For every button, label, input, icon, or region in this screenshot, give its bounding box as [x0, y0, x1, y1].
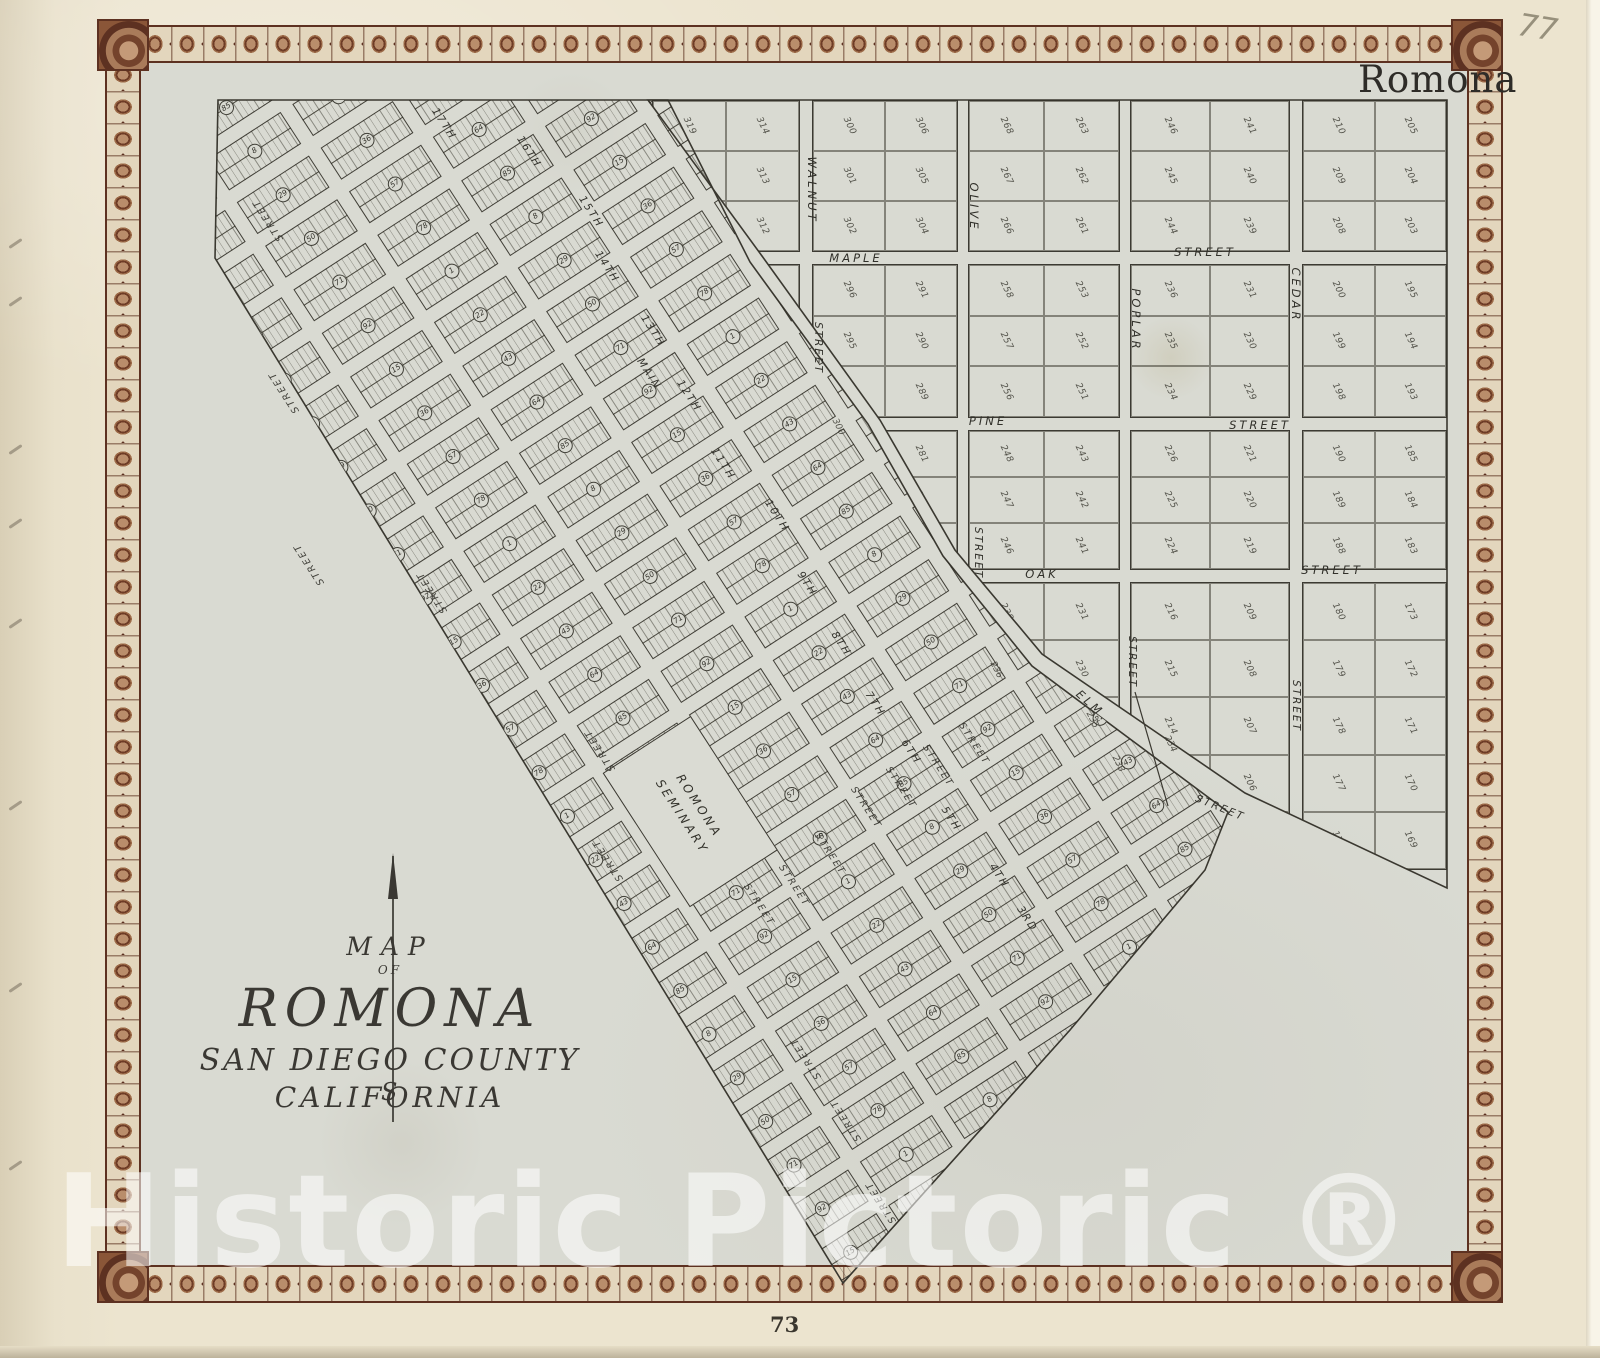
street-label-walnut: WALNUT: [805, 156, 819, 223]
lot-number: 296: [840, 280, 857, 301]
lot-number: 229: [1241, 381, 1258, 402]
lot-cell: 230: [1210, 316, 1289, 367]
street-label-street: STREET: [1290, 680, 1302, 732]
block-number: 36: [1034, 806, 1055, 827]
lot-number: 306: [912, 115, 929, 136]
lot-cell: 301: [813, 151, 885, 201]
lot-number: 180: [1330, 601, 1347, 622]
block-number: 78: [471, 490, 492, 511]
block-number: 85: [670, 980, 691, 1001]
block-number: 57: [839, 1057, 860, 1078]
lot-number: 246: [1162, 115, 1179, 136]
lot-number: 183: [1402, 535, 1419, 556]
lot-number: 290: [912, 330, 929, 351]
block-number: 8: [583, 479, 604, 500]
street-label-cedar: CEDAR: [1289, 267, 1303, 322]
lot-number: 234: [1162, 381, 1179, 402]
lot-cell: 239: [1210, 201, 1289, 251]
lot-number: 205: [1402, 115, 1419, 136]
lot-number: 258: [998, 280, 1015, 301]
block-number: 50: [921, 632, 942, 653]
lot-number: 209: [1330, 165, 1347, 186]
block-number: 64: [865, 730, 886, 751]
block-number: 29: [893, 588, 914, 609]
lot-number: 208: [1330, 215, 1347, 236]
lot-cell: 241: [1044, 523, 1119, 569]
block-number: 43: [556, 621, 577, 642]
lot-cell: 180: [1303, 583, 1375, 640]
lot-cell: 245: [1131, 151, 1210, 201]
lot-number: 177: [1330, 773, 1347, 794]
lot-cell: 248: [969, 431, 1044, 477]
lot-cell: 258: [969, 265, 1044, 316]
block-number: 29: [273, 184, 294, 205]
lot-number: 169: [1402, 830, 1419, 851]
block-number: 43: [498, 348, 519, 369]
lot-number: 194: [1402, 330, 1419, 351]
lot-cell: 210: [1303, 101, 1375, 151]
lot-number: 281: [912, 443, 929, 464]
street-label-pine: PINE: [969, 414, 1007, 428]
lot-number: 231: [1241, 280, 1258, 301]
lot-cell: 190: [1303, 431, 1375, 477]
lot-number: 241: [1241, 115, 1258, 136]
lot-cell: 205: [1375, 101, 1447, 151]
lot-cell: 170: [1375, 755, 1447, 812]
lot-number: 304: [912, 215, 929, 236]
block-number: 50: [755, 1111, 776, 1132]
lot-number: 193: [1402, 381, 1419, 402]
lot-number: 189: [1330, 489, 1347, 510]
street-label-oak: OAK: [1025, 567, 1058, 581]
lot-cell: 224: [1131, 523, 1210, 569]
lot-number: 239: [1241, 215, 1258, 236]
block-number: 57: [724, 512, 745, 533]
street-label-poplar: POPLAR: [1129, 288, 1143, 351]
lot-number: 244: [1162, 215, 1179, 236]
lot-number: 248: [998, 443, 1015, 464]
street-label-street: STREET: [1174, 245, 1236, 259]
lot-cell: 226: [1131, 431, 1210, 477]
lot-cell: 216: [1131, 583, 1210, 640]
lot-number: 172: [1402, 658, 1419, 679]
lot-number: 190: [1330, 443, 1347, 464]
lot-cell: 241: [1210, 101, 1289, 151]
block-number: 29: [612, 522, 633, 543]
lot-number: 220: [1241, 489, 1258, 510]
block-number: 50: [301, 228, 322, 249]
lot-number: 208: [1241, 658, 1258, 679]
lot-number: 230: [1073, 658, 1090, 679]
block-number: 64: [808, 457, 829, 478]
lot-number: 230: [1241, 330, 1258, 351]
block-number: 57: [443, 446, 464, 467]
lot-number: 240: [1241, 165, 1258, 186]
lot-number: 262: [1073, 165, 1090, 186]
lot-number: 247: [998, 489, 1015, 510]
block-number: 29: [727, 1068, 748, 1089]
lot-cell: 246: [1131, 101, 1210, 151]
lot-number: 312: [754, 215, 771, 236]
handwritten-page-number: 77: [1515, 7, 1560, 49]
block-number: 57: [385, 174, 406, 195]
block-number: 43: [895, 959, 916, 980]
lot-cell: 204: [1375, 151, 1447, 201]
block-number: 57: [1062, 850, 1083, 871]
lot-number: 261: [1073, 215, 1090, 236]
lot-cell: 208: [1303, 201, 1375, 251]
lot-cell: 225: [1131, 477, 1210, 523]
lot-number: 206: [1241, 773, 1258, 794]
city-block: 210209208205204203: [1302, 100, 1447, 252]
lot-number: 313: [754, 165, 771, 186]
lot-number: 289: [912, 381, 929, 402]
block-number: 85: [951, 1046, 972, 1067]
lot-number: 215: [1162, 658, 1179, 679]
block-number: 43: [837, 686, 858, 707]
block-number: 85: [555, 435, 576, 456]
city-block: 200199198195194193: [1302, 264, 1447, 418]
lot-cell: 215: [1131, 640, 1210, 697]
lot-number: 226: [1162, 443, 1179, 464]
lot-cell: 262: [1044, 151, 1119, 201]
block-number: 71: [329, 272, 350, 293]
block-number: 64: [923, 1002, 944, 1023]
lot-cell: 209: [1210, 583, 1289, 640]
lot-cell: 268: [969, 101, 1044, 151]
lot-cell: 229: [1210, 366, 1289, 417]
lot-cell: 220: [1210, 477, 1289, 523]
block-number: 50: [979, 904, 1000, 925]
lot-cell: 296: [813, 265, 885, 316]
lot-number: 200: [1330, 280, 1347, 301]
lot-number: 245: [1162, 165, 1179, 186]
block-number: 85: [497, 163, 518, 184]
lot-number: 171: [1402, 715, 1419, 736]
block-number: 8: [980, 1089, 1001, 1110]
block-number: 8: [244, 141, 265, 162]
block-number: 36: [753, 741, 774, 762]
lot-number: 221: [1241, 443, 1258, 464]
block-number: 1: [442, 261, 463, 282]
lot-cell: 208: [1210, 640, 1289, 697]
lot-cell: 242: [1044, 477, 1119, 523]
lot-number: 195: [1402, 280, 1419, 301]
block-number: 50: [640, 566, 661, 587]
block-number: 71: [949, 675, 970, 696]
lot-cell: 173: [1375, 583, 1447, 640]
lot-number: 291: [912, 280, 929, 301]
block-number: 85: [216, 97, 237, 118]
street-label-street: STREET: [1126, 636, 1138, 688]
city-block: 236235234231230229: [1130, 264, 1290, 418]
lot-cell: 179: [1303, 640, 1375, 697]
cartouche-of-word: OF: [170, 963, 610, 977]
lot-cell: 184: [1375, 477, 1447, 523]
lot-cell: 195: [1375, 265, 1447, 316]
lot-number: 210: [1330, 115, 1347, 136]
block-number: 64: [584, 664, 605, 685]
lot-number: 242: [1073, 489, 1090, 510]
lot-number: 170: [1402, 773, 1419, 794]
lot-cell: 193: [1375, 366, 1447, 417]
block-number: 15: [725, 697, 746, 718]
lot-cell: 291: [885, 265, 957, 316]
cartouche-map-word: MAP: [170, 932, 610, 961]
lot-cell: 244: [1131, 201, 1210, 251]
lot-cell: 209: [1303, 151, 1375, 201]
lot-number: 266: [998, 215, 1015, 236]
lot-cell: 289: [885, 366, 957, 417]
lot-cell: 300: [813, 101, 885, 151]
lot-number: 179: [1330, 658, 1347, 679]
street-label-street: STREET: [812, 322, 824, 374]
block-number: 29: [950, 861, 971, 882]
block-number: 78: [694, 283, 715, 304]
block-number: 15: [609, 152, 630, 173]
city-block: 226225224221220219: [1130, 430, 1290, 570]
lot-cell: 305: [885, 151, 957, 201]
lot-cell: 304: [885, 201, 957, 251]
block-number: 15: [1006, 762, 1027, 783]
block-number: 78: [413, 217, 434, 238]
block-number: 22: [528, 577, 549, 598]
lot-number: 178: [1330, 715, 1347, 736]
page-bottom-edge: [0, 1346, 1600, 1358]
block-number: 36: [414, 402, 435, 423]
city-block: 180179178177176173172171170169: [1302, 582, 1447, 870]
block-number: 92: [978, 719, 999, 740]
city-block: 258257256253252251: [968, 264, 1120, 418]
block-number: 71: [1007, 948, 1028, 969]
lot-cell: 306: [885, 101, 957, 151]
block-number: 71: [610, 337, 631, 358]
lot-cell: 253: [1044, 265, 1119, 316]
lot-cell: 302: [813, 201, 885, 251]
lot-cell: 257: [969, 316, 1044, 367]
block-number: 92: [1035, 991, 1056, 1012]
block-number: 8: [699, 1024, 720, 1045]
block-number: 78: [868, 1100, 889, 1121]
block-number: 64: [642, 937, 663, 958]
lot-cell: 219: [1210, 523, 1289, 569]
lot-cell: 256: [969, 366, 1044, 417]
lot-number: 173: [1402, 601, 1419, 622]
lot-cell: 231: [1044, 583, 1119, 640]
lot-number: 302: [840, 215, 857, 236]
block-number: 36: [357, 130, 378, 151]
block-number: 36: [811, 1013, 832, 1034]
lot-cell: 177: [1303, 755, 1375, 812]
street-label-maple: MAPLE: [829, 251, 882, 265]
city-block: 248247246243242241: [968, 430, 1120, 570]
block-number: 8: [922, 817, 943, 838]
lot-number: 246: [998, 535, 1015, 556]
lot-number: 198: [1330, 381, 1347, 402]
lot-cell: 240: [1210, 151, 1289, 201]
lot-number: 257: [998, 330, 1015, 351]
block-number: 8: [864, 544, 885, 565]
block-number: 1: [499, 533, 520, 554]
lot-number: 268: [998, 115, 1015, 136]
block-number: 71: [668, 610, 689, 631]
lot-cell: 221: [1210, 431, 1289, 477]
lot-number: 251: [1073, 381, 1090, 402]
lot-number: 267: [998, 165, 1015, 186]
block-number: 92: [581, 108, 602, 129]
city-block: 300301302306305304: [812, 100, 958, 252]
scanned-atlas-page: 8518152229364343505764716471788592185921…: [0, 0, 1600, 1358]
lot-number: 235: [1162, 330, 1179, 351]
lot-cell: 171: [1375, 697, 1447, 754]
block-number: 78: [752, 555, 773, 576]
printed-page-number: 73: [770, 1312, 799, 1337]
block-number: 78: [1091, 893, 1112, 914]
lot-number: 305: [912, 165, 929, 186]
city-block: 268267266263262261: [968, 100, 1120, 252]
block-number: 64: [527, 392, 548, 413]
block-number: 22: [809, 642, 830, 663]
lot-number: 203: [1402, 215, 1419, 236]
block-number: 15: [667, 424, 688, 445]
lot-number: 199: [1330, 330, 1347, 351]
block-number: 57: [666, 239, 687, 260]
lot-cell: 261: [1044, 201, 1119, 251]
lot-cell: 231: [1210, 265, 1289, 316]
street-label-olive: OLIVE: [967, 183, 981, 232]
lot-number: 185: [1402, 443, 1419, 464]
lot-cell: 198: [1303, 366, 1375, 417]
city-block: 190189188185184183: [1302, 430, 1447, 570]
block-number: 43: [779, 414, 800, 435]
lot-number: 219: [1241, 535, 1258, 556]
block-number: 57: [781, 784, 802, 805]
lot-number: 295: [840, 330, 857, 351]
lot-number: 224: [1162, 535, 1179, 556]
watermark: Historic Pictoric ®: [55, 1148, 1415, 1297]
street-label-street: STREET: [972, 527, 984, 579]
lot-cell: 243: [1044, 431, 1119, 477]
block-number: 43: [614, 893, 635, 914]
block-number: 92: [754, 926, 775, 947]
block-number: 92: [696, 653, 717, 674]
lot-cell: 183: [1375, 523, 1447, 569]
lot-number: 252: [1073, 330, 1090, 351]
street-label-street: STREET: [1229, 418, 1291, 432]
block-number: 22: [470, 304, 491, 325]
lot-cell: 172: [1375, 640, 1447, 697]
lot-number: 253: [1073, 280, 1090, 301]
lot-number: 184: [1402, 489, 1419, 510]
street-label-street: STREET: [1301, 563, 1363, 577]
lot-cell: 178: [1303, 697, 1375, 754]
lot-cell: 247: [969, 477, 1044, 523]
lot-cell: 199: [1303, 316, 1375, 367]
block-number: 36: [638, 195, 659, 216]
lot-number: 256: [998, 381, 1015, 402]
block-number: 8: [525, 206, 546, 227]
lot-number: 236: [1162, 280, 1179, 301]
block-number: 15: [386, 359, 407, 380]
lot-number: 207: [1241, 715, 1258, 736]
lot-number: 209: [1241, 601, 1258, 622]
title-cartouche: MAP OF ROMONA SAN DIEGO COUNTY CALIFORNI…: [170, 932, 610, 1114]
compass-north-arrow: [388, 853, 398, 899]
cartouche-state: CALIFORNIA: [170, 1081, 610, 1114]
block-number: 1: [780, 599, 801, 620]
block-number: 15: [783, 969, 804, 990]
block-number: 92: [358, 315, 379, 336]
city-block: 246245244241240239: [1130, 100, 1290, 252]
block-number: 22: [866, 915, 887, 936]
sheet-title: Romona: [1358, 58, 1517, 101]
lot-number: 216: [1162, 601, 1179, 622]
lot-cell: 290: [885, 316, 957, 367]
lot-cell: 203: [1375, 201, 1447, 251]
lot-number: 300: [840, 115, 857, 136]
lot-number: 204: [1402, 165, 1419, 186]
lot-cell: 194: [1375, 316, 1447, 367]
block-number: 22: [751, 370, 772, 391]
block-number: 85: [836, 501, 857, 522]
cartouche-town-name: ROMONA: [170, 979, 610, 1039]
lot-cell: 263: [1044, 101, 1119, 151]
block-number: 64: [1146, 795, 1167, 816]
lot-cell: 200: [1303, 265, 1375, 316]
lot-cell: 251: [1044, 366, 1119, 417]
block-number: 29: [554, 250, 575, 271]
lot-cell: 207: [1210, 697, 1289, 754]
lot-number: 243: [1073, 443, 1090, 464]
block-number: 1: [723, 326, 744, 347]
lot-number: 263: [1073, 115, 1090, 136]
lot-number: 301: [840, 165, 857, 186]
lot-number: 319: [681, 115, 698, 136]
lot-cell: 252: [1044, 316, 1119, 367]
lot-cell: 234: [1131, 366, 1210, 417]
lot-cell: 189: [1303, 477, 1375, 523]
block-number: 64: [469, 119, 490, 140]
lot-number: 231: [1073, 601, 1090, 622]
lot-cell: 314: [726, 101, 799, 151]
lot-number: 225: [1162, 489, 1179, 510]
lot-cell: 185: [1375, 431, 1447, 477]
block-number: 50: [582, 294, 603, 315]
lot-number: 314: [754, 115, 771, 136]
lot-cell: 313: [726, 151, 799, 201]
lot-number: 241: [1073, 535, 1090, 556]
cartouche-county: SAN DIEGO COUNTY: [170, 1043, 610, 1078]
block-number: 85: [1175, 839, 1196, 860]
lot-number: 188: [1330, 535, 1347, 556]
block-number: 85: [613, 708, 634, 729]
block-number: 36: [695, 468, 716, 489]
